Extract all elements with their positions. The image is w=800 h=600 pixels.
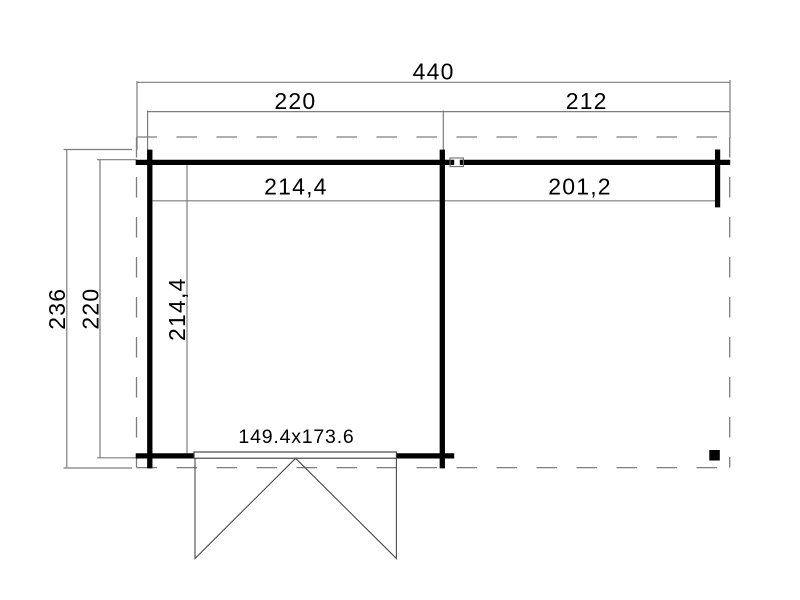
svg-text:201,2: 201,2 <box>548 173 612 199</box>
svg-text:220: 220 <box>274 88 316 114</box>
svg-text:214,4: 214,4 <box>264 173 328 199</box>
svg-text:236: 236 <box>44 288 70 330</box>
svg-text:220: 220 <box>77 288 103 330</box>
svg-text:212: 212 <box>566 88 608 114</box>
svg-text:149.4x173.6: 149.4x173.6 <box>238 426 354 448</box>
svg-text:214,4: 214,4 <box>164 277 190 341</box>
svg-text:440: 440 <box>413 59 455 85</box>
